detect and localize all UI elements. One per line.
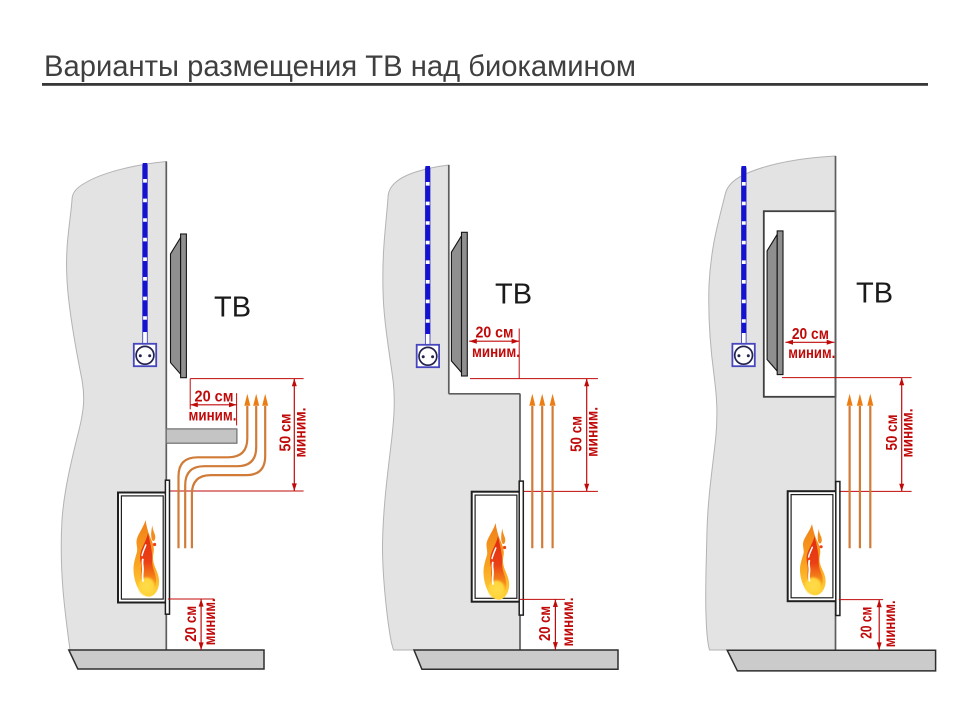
svg-text:20 см: 20 см bbox=[792, 326, 829, 343]
svg-text:20 см: 20 см bbox=[859, 607, 876, 639]
svg-text:миним.: миним. bbox=[788, 345, 835, 362]
svg-text:20 см: 20 см bbox=[183, 606, 200, 642]
svg-text:миним.: миним. bbox=[189, 408, 237, 425]
svg-text:Варианты размещения ТВ над био: Варианты размещения ТВ над биокамином bbox=[44, 50, 636, 83]
svg-text:20 см: 20 см bbox=[195, 388, 234, 405]
svg-text:ТВ: ТВ bbox=[856, 277, 893, 309]
svg-text:миним.: миним. bbox=[882, 600, 899, 647]
svg-text:миним.: миним. bbox=[202, 598, 219, 645]
svg-text:ТВ: ТВ bbox=[214, 292, 251, 324]
svg-text:миним.: миним. bbox=[472, 344, 520, 361]
svg-text:миним.: миним. bbox=[585, 407, 602, 457]
svg-text:миним.: миним. bbox=[560, 598, 577, 647]
svg-text:миним.: миним. bbox=[293, 408, 310, 458]
svg-text:ТВ: ТВ bbox=[495, 279, 532, 311]
svg-text:20 см: 20 см bbox=[476, 325, 514, 342]
svg-text:20 см: 20 см bbox=[537, 606, 554, 641]
svg-text:миним.: миним. bbox=[899, 409, 916, 458]
svg-text:50 см: 50 см bbox=[569, 416, 586, 452]
